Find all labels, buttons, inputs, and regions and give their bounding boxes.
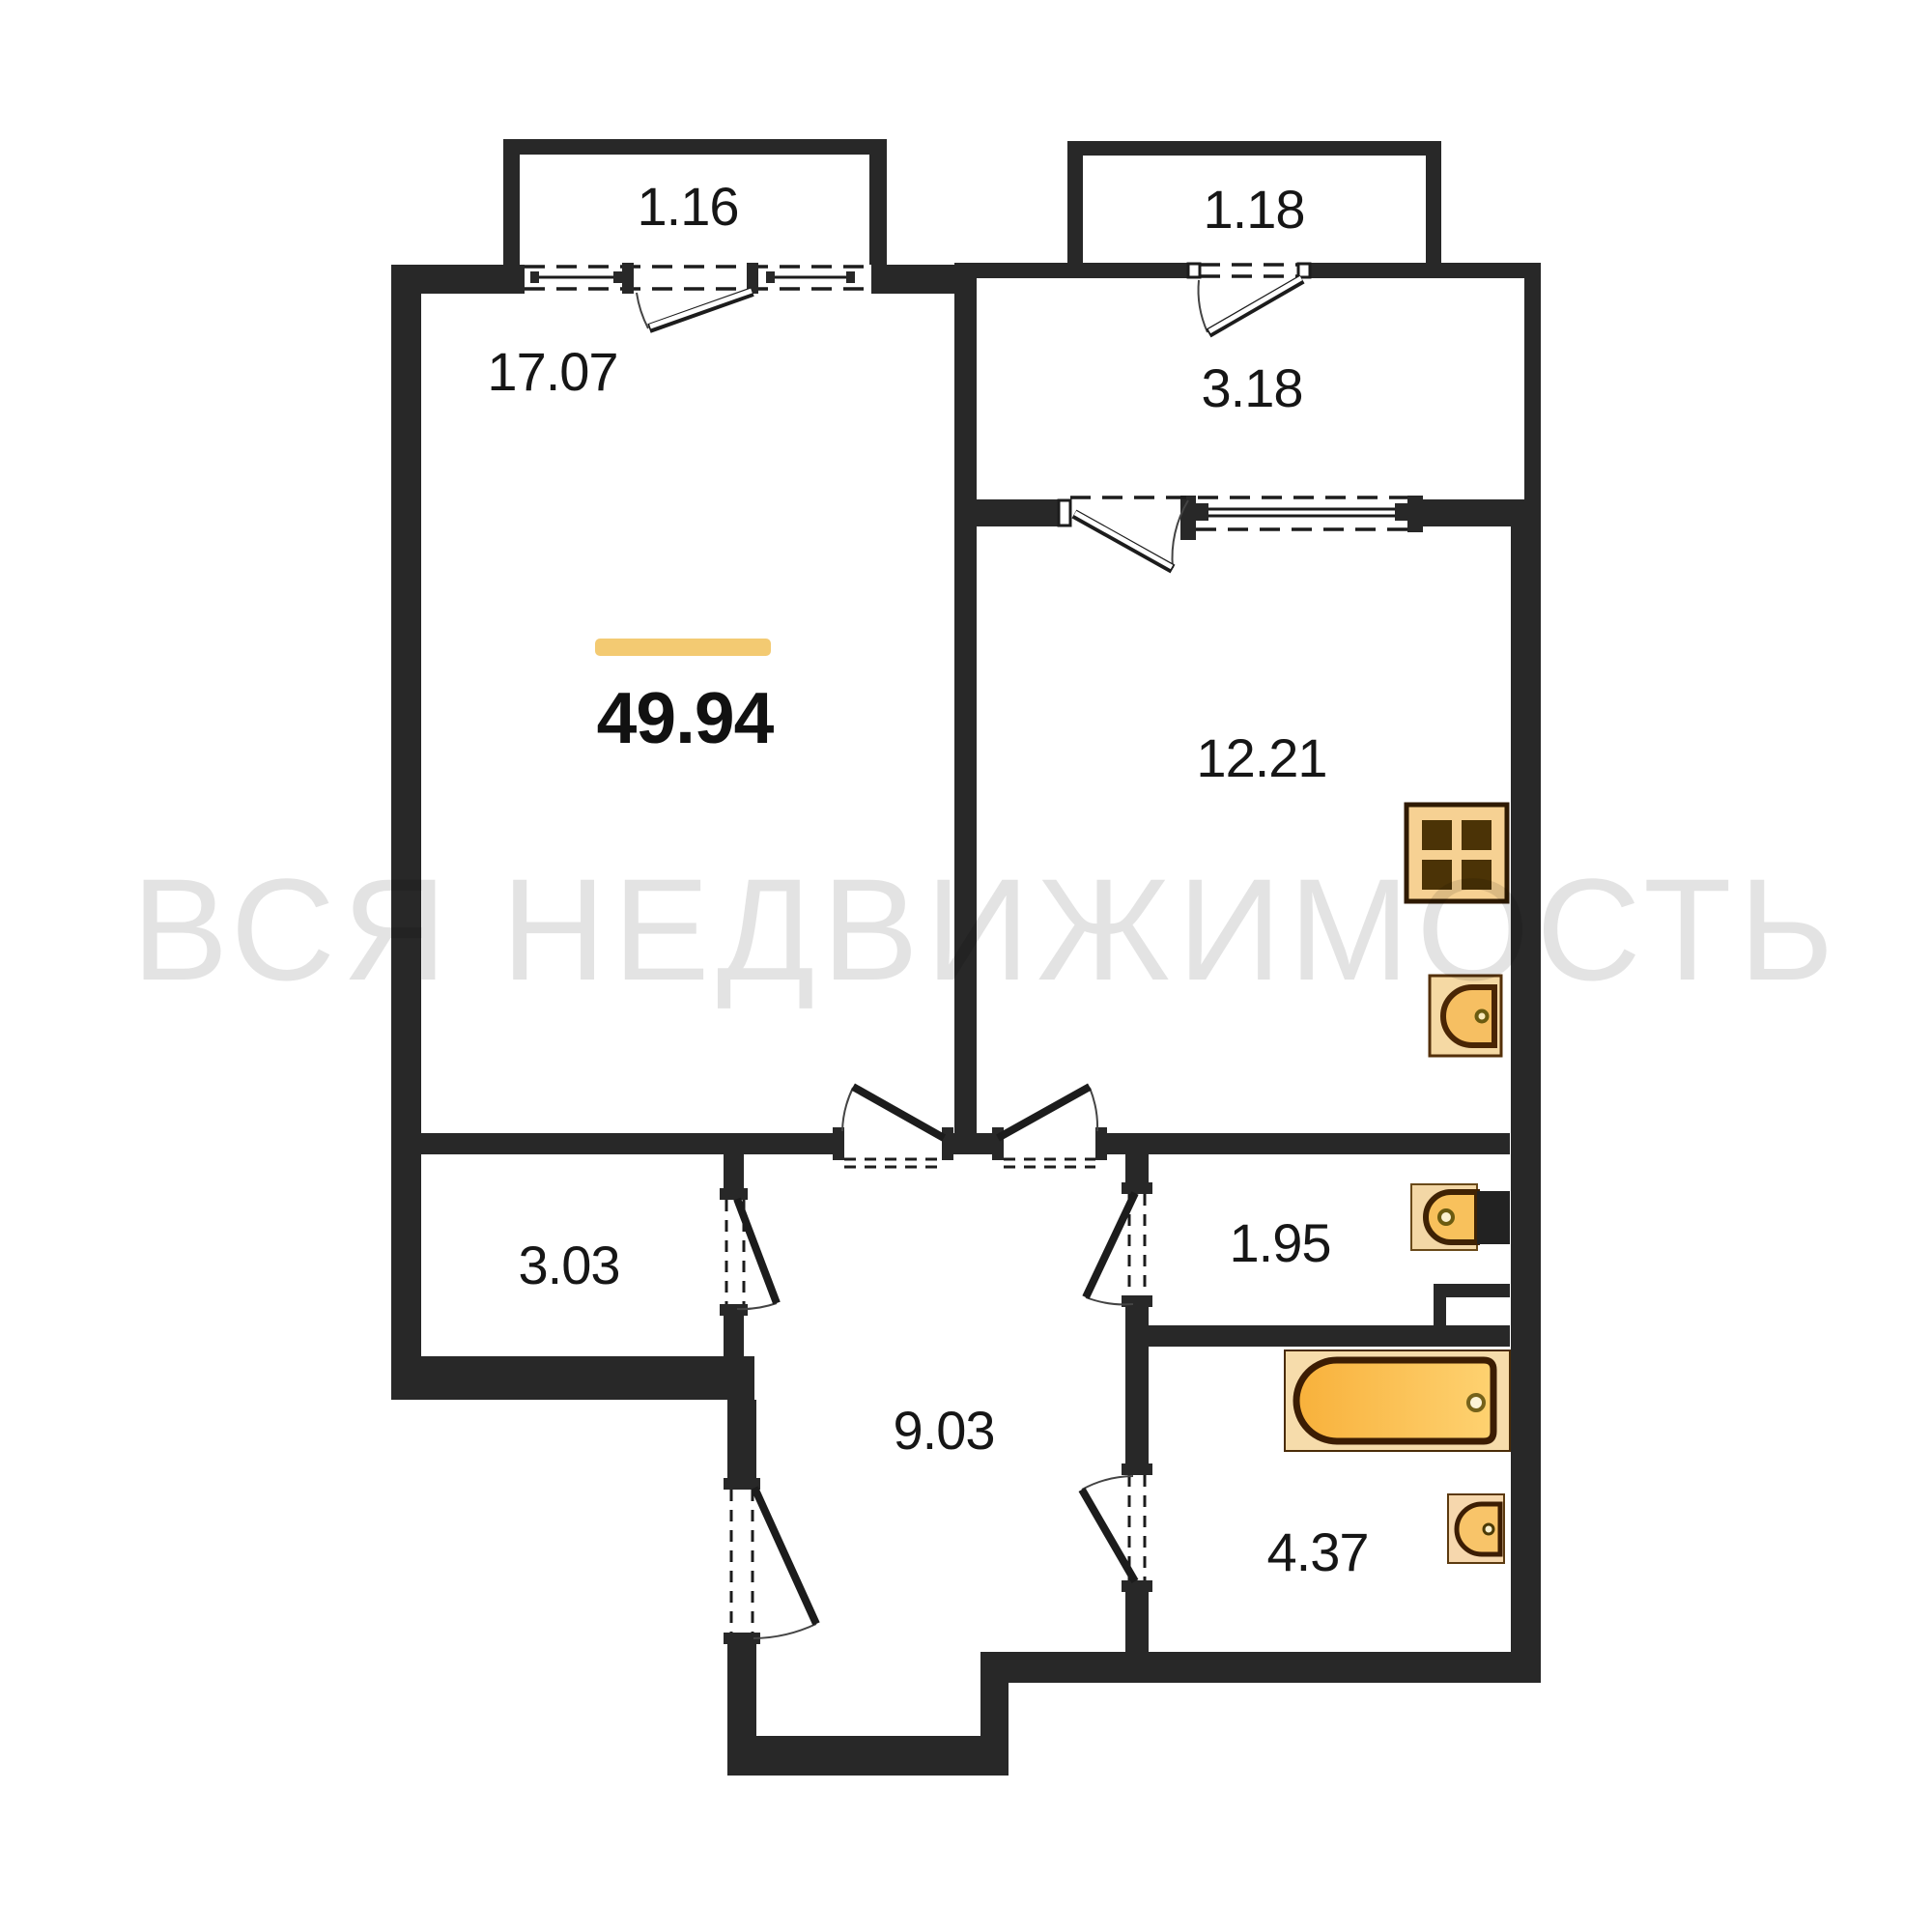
svg-text:1.16: 1.16 [638, 176, 739, 237]
svg-text:3.18: 3.18 [1202, 357, 1303, 418]
svg-text:9.03: 9.03 [894, 1400, 995, 1461]
svg-text:17.07: 17.07 [487, 341, 617, 402]
svg-text:1.18: 1.18 [1204, 179, 1305, 240]
svg-text:49.94: 49.94 [597, 677, 775, 758]
svg-text:4.37: 4.37 [1267, 1521, 1369, 1582]
svg-text:3.03: 3.03 [519, 1235, 620, 1295]
svg-text:ВСЯ НЕДВИЖИМОСТЬ: ВСЯ НЕДВИЖИМОСТЬ [131, 848, 1840, 1010]
svg-text:12.21: 12.21 [1196, 727, 1326, 788]
svg-text:1.95: 1.95 [1230, 1212, 1331, 1273]
